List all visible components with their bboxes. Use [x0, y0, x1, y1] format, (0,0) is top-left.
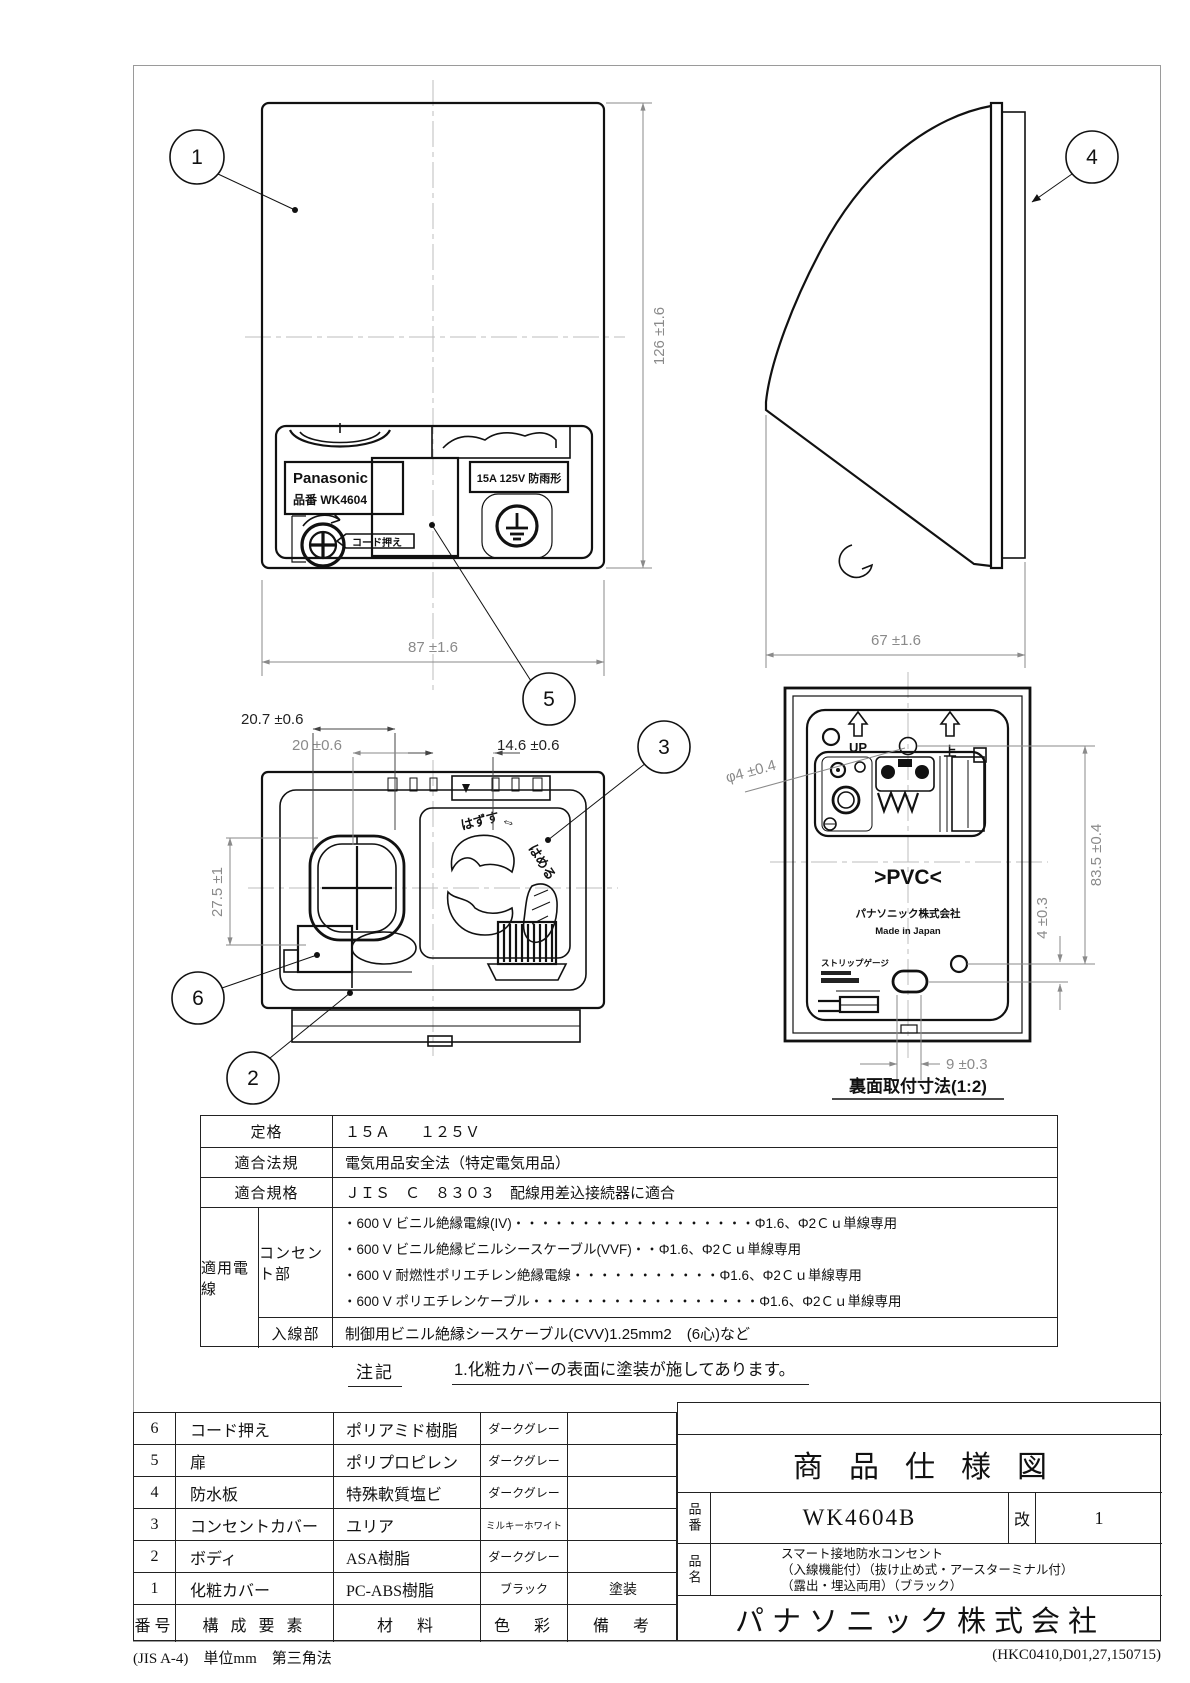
parts-cell: ボディ — [176, 1541, 334, 1573]
title-block-empty-row — [678, 1403, 1162, 1434]
spec-value: ＪＩＳ Ｃ ８３０３ 配線用差込接続器に適合 — [333, 1178, 1057, 1208]
drawing-title: 商品仕様図 — [678, 1434, 1162, 1492]
dim-height: 126 ±1.6 — [651, 307, 668, 365]
parts-cell: 特殊軟質塩ビ — [334, 1477, 481, 1509]
dim-depth: 67 ±1.6 — [871, 632, 921, 649]
model-label: 品番 WK4604 — [293, 492, 367, 507]
part-no-label: 品番 — [678, 1493, 710, 1543]
made-in-japan-mark: Made in Japan — [875, 926, 941, 937]
parts-cell: 6 — [134, 1413, 176, 1445]
parts-cell: ダークグレー — [481, 1445, 568, 1477]
dim-4: 4 ±0.3 — [1034, 897, 1051, 939]
parts-header-cell: 番号 — [134, 1605, 176, 1642]
note-label: 注記 — [348, 1358, 402, 1387]
footer-standard-note: (JIS A-4) 単位mm 第三角法 — [133, 1647, 332, 1668]
wire-line: ・600 V ビニル絶縁電線(IV)・・・・・・・・・・・・・・・・・・Φ1.6… — [343, 1211, 897, 1237]
back-view: UP 上 >PVC< パナソニック株式会社 Made in Japan ストリッ… — [724, 672, 1105, 1099]
product-name-label: 品名 — [678, 1544, 710, 1595]
parts-cell: 防水板 — [176, 1477, 334, 1509]
svg-text:5: 5 — [543, 688, 555, 711]
revision-value: 1 — [1035, 1493, 1162, 1543]
balloon-1: 1 — [170, 130, 298, 213]
wire-line: ・600 V 耐燃性ポリエチレン絶縁電線・・・・・・・・・・・Φ1.6、Φ2Ｃｕ… — [343, 1263, 862, 1289]
maker-mark: パナソニック株式会社 — [856, 907, 961, 920]
parts-cell: 1 — [134, 1573, 176, 1605]
outlet-wire-list: ・600 V ビニル絶縁電線(IV)・・・・・・・・・・・・・・・・・・Φ1.6… — [333, 1208, 1057, 1318]
drawing-views: Panasonic 品番 WK4604 コード押え 15A 125V 防雨形 — [0, 0, 1190, 1112]
parts-cell — [568, 1413, 678, 1445]
parts-cell: ユリア — [334, 1509, 481, 1541]
product-name-value: スマート接地防水コンセント（入線機能付）（抜け止め式・アースターミナル付）（露出… — [710, 1544, 1162, 1595]
brand-label: Panasonic — [293, 470, 368, 487]
revision-label: 改 — [1008, 1493, 1035, 1543]
parts-cell: 4 — [134, 1477, 176, 1509]
parts-cell: ASA樹脂 — [334, 1541, 481, 1573]
parts-cell: ダークグレー — [481, 1541, 568, 1573]
parts-cell: 扉 — [176, 1445, 334, 1477]
parts-header-cell: 備 考 — [568, 1605, 678, 1642]
parts-cell: 3 — [134, 1509, 176, 1541]
inlet-value: 制御用ビニル絶縁シースケーブル(CVV)1.25mm2 (6心)など — [333, 1318, 1057, 1348]
front-view: Panasonic 品番 WK4604 コード押え 15A 125V 防雨形 — [245, 80, 668, 690]
rating-label: 15A 125V 防雨形 — [477, 471, 562, 485]
parts-cell — [568, 1477, 678, 1509]
door-remove-label: はずす — [459, 809, 500, 833]
balloon-4: 4 — [1032, 131, 1118, 202]
cord-tag-label: コード押え — [352, 536, 402, 549]
svg-text:2: 2 — [247, 1067, 259, 1090]
back-view-caption: 裏面取付寸法(1:2) — [848, 1076, 987, 1096]
parts-header-cell: 構 成 要 素 — [176, 1605, 334, 1642]
wire-label: 適用電線 — [201, 1208, 259, 1348]
svg-text:4: 4 — [1086, 146, 1098, 169]
footer-doc-code: (HKC0410,D01,27,150715) — [992, 1647, 1161, 1664]
parts-cell: コンセントカバー — [176, 1509, 334, 1541]
parts-header-cell: 材 料 — [334, 1605, 481, 1642]
spec-value: １５Ａ １２５Ｖ — [333, 1116, 1057, 1148]
parts-cell: ダークグレー — [481, 1477, 568, 1509]
parts-cell: 化粧カバー — [176, 1573, 334, 1605]
name-line: （露出・埋込両用）（ブラック） — [781, 1578, 962, 1594]
parts-cell: ポリアミド樹脂 — [334, 1413, 481, 1445]
wire-line: ・600 V ビニル絶縁ビニルシースケーブル(VVF)・・Φ1.6、Φ2Ｃｕ単線… — [343, 1237, 801, 1263]
spec-label: 適合法規 — [201, 1148, 333, 1178]
svg-text:1: 1 — [191, 146, 203, 169]
balloon-5: 5 — [429, 522, 575, 725]
dim-20: 20 ±0.6 — [292, 737, 342, 754]
svg-text:3: 3 — [658, 736, 670, 759]
door-attach-label: はめる — [525, 842, 558, 883]
parts-cell: 2 — [134, 1541, 176, 1573]
parts-table: 6コード押えポリアミド樹脂ダークグレー5扉ポリプロピレンダークグレー4防水板特殊… — [133, 1412, 677, 1641]
spec-drawing-sheet: Panasonic 品番 WK4604 コード押え 15A 125V 防雨形 — [0, 0, 1190, 1683]
parts-cell — [568, 1509, 678, 1541]
parts-cell: 5 — [134, 1445, 176, 1477]
company-name: パナソニック株式会社 — [678, 1595, 1162, 1642]
parts-cell — [568, 1541, 678, 1573]
parts-cell: ダークグレー — [481, 1413, 568, 1445]
parts-cell: ブラック — [481, 1573, 568, 1605]
dim-27-5: 27.5 ±1 — [209, 867, 226, 917]
dim-hole: φ4 ±0.4 — [724, 757, 778, 787]
svg-text:6: 6 — [192, 987, 204, 1010]
outlet-label: コンセント部 — [259, 1208, 333, 1318]
dim-width: 87 ±1.6 — [408, 639, 458, 656]
dim-9: 9 ±0.3 — [946, 1056, 988, 1073]
dim-83-5: 83.5 ±0.4 — [1088, 824, 1105, 886]
parts-header-cell: 色 彩 — [481, 1605, 568, 1642]
parts-cell: ミルキーホワイト — [481, 1509, 568, 1541]
note-text: 1.化粧カバーの表面に塗装が施してあります。 — [452, 1356, 809, 1385]
parts-cell: コード押え — [176, 1413, 334, 1445]
name-line: スマート接地防水コンセント — [781, 1546, 943, 1562]
spec-value: 電気用品安全法（特定電気用品） — [333, 1148, 1057, 1178]
door-swap-arrow: ⇔ — [499, 812, 519, 833]
name-line: （入線機能付）（抜け止め式・アースターミナル付） — [781, 1562, 1073, 1578]
spec-label: 適合規格 — [201, 1178, 333, 1208]
parts-cell: 塗装 — [568, 1573, 678, 1605]
wire-line: ・600 V ポリエチレンケーブル・・・・・・・・・・・・・・・・・Φ1.6、Φ… — [343, 1289, 902, 1315]
spec-label: 定格 — [201, 1116, 333, 1148]
parts-cell — [568, 1445, 678, 1477]
side-view: 67 ±1.6 — [766, 103, 1025, 668]
pvc-mark: >PVC< — [874, 866, 942, 889]
spec-table: 定格 １５Ａ １２５Ｖ 適合法規 電気用品安全法（特定電気用品） 適合規格 ＪＩ… — [200, 1115, 1058, 1347]
balloon-3: 3 — [545, 721, 690, 843]
inlet-label: 入線部 — [259, 1318, 333, 1348]
dim-20-7: 20.7 ±0.6 — [241, 711, 303, 728]
dim-14-6: 14.6 ±0.6 — [497, 737, 559, 754]
parts-cell: ポリプロピレン — [334, 1445, 481, 1477]
part-no-value: WK4604B — [710, 1493, 1008, 1543]
strip-gauge-label: ストリップゲージ — [821, 958, 889, 968]
open-view: はずす ⇔ はめる 20.7 ±0.6 20 ±0.6 — [209, 711, 618, 1056]
parts-cell: PC-ABS樹脂 — [334, 1573, 481, 1605]
title-block: 商品仕様図 品番 WK4604B 改 1 品名 スマート接地防水コンセント（入線… — [677, 1402, 1161, 1641]
